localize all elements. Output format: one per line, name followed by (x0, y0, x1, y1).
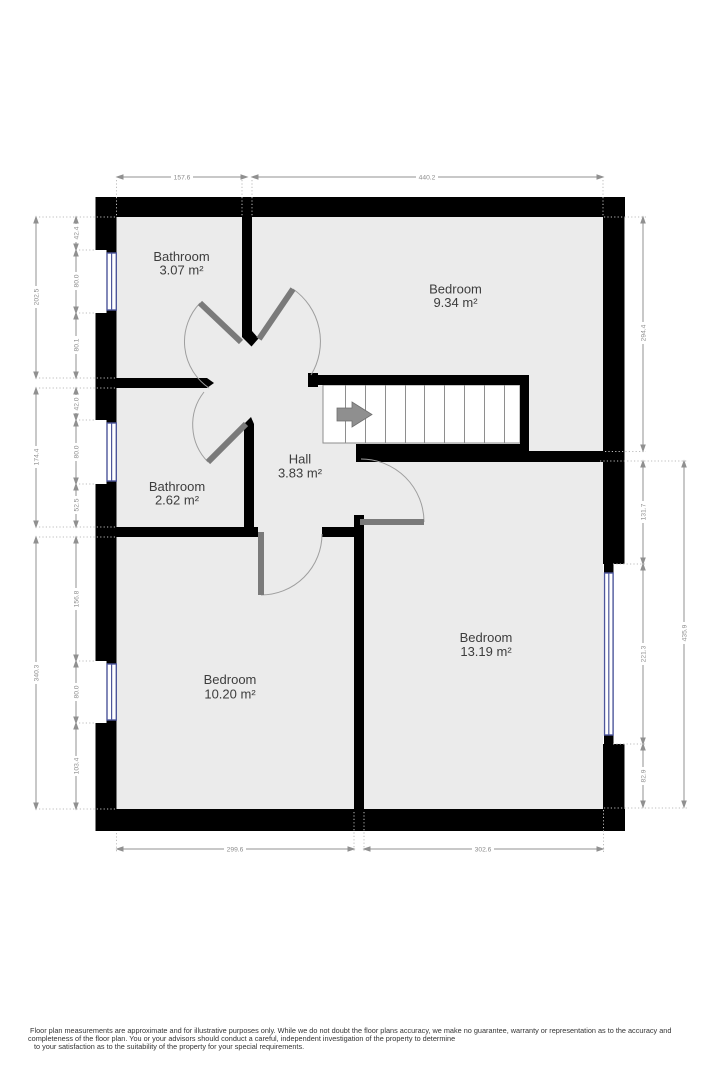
svg-text:to your satisfaction as to the: to your satisfaction as to the suitabili… (34, 1042, 304, 1051)
svg-text:2.62 m²: 2.62 m² (155, 493, 200, 508)
svg-text:340.3: 340.3 (33, 664, 40, 681)
svg-text:Hall: Hall (289, 451, 312, 466)
svg-text:52.5: 52.5 (73, 498, 80, 511)
svg-text:3.83 m²: 3.83 m² (278, 465, 323, 480)
svg-text:10.20 m²: 10.20 m² (204, 686, 256, 701)
svg-text:157.6: 157.6 (174, 174, 191, 181)
svg-text:103.4: 103.4 (73, 757, 80, 774)
svg-text:174.4: 174.4 (33, 448, 40, 465)
svg-text:435.9: 435.9 (681, 624, 688, 641)
svg-text:82.9: 82.9 (640, 769, 647, 782)
svg-text:202.5: 202.5 (33, 288, 40, 305)
svg-text:221.3: 221.3 (640, 645, 647, 662)
svg-text:80.0: 80.0 (73, 274, 80, 287)
svg-text:80.1: 80.1 (73, 338, 80, 351)
svg-text:131.7: 131.7 (640, 503, 647, 520)
svg-text:440.2: 440.2 (419, 174, 436, 181)
svg-text:3.07 m²: 3.07 m² (159, 263, 204, 278)
svg-text:42.0: 42.0 (73, 397, 80, 410)
svg-text:156.8: 156.8 (73, 590, 80, 607)
svg-text:80.0: 80.0 (73, 685, 80, 698)
svg-text:299.6: 299.6 (227, 846, 244, 853)
svg-text:13.19 m²: 13.19 m² (460, 644, 512, 659)
svg-text:Bedroom: Bedroom (204, 672, 257, 687)
svg-text:9.34 m²: 9.34 m² (433, 295, 478, 310)
svg-text:302.6: 302.6 (475, 846, 492, 853)
svg-text:294.4: 294.4 (640, 324, 647, 341)
svg-text:Bedroom: Bedroom (460, 630, 513, 645)
svg-text:80.0: 80.0 (73, 445, 80, 458)
svg-text:42.4: 42.4 (73, 226, 80, 239)
